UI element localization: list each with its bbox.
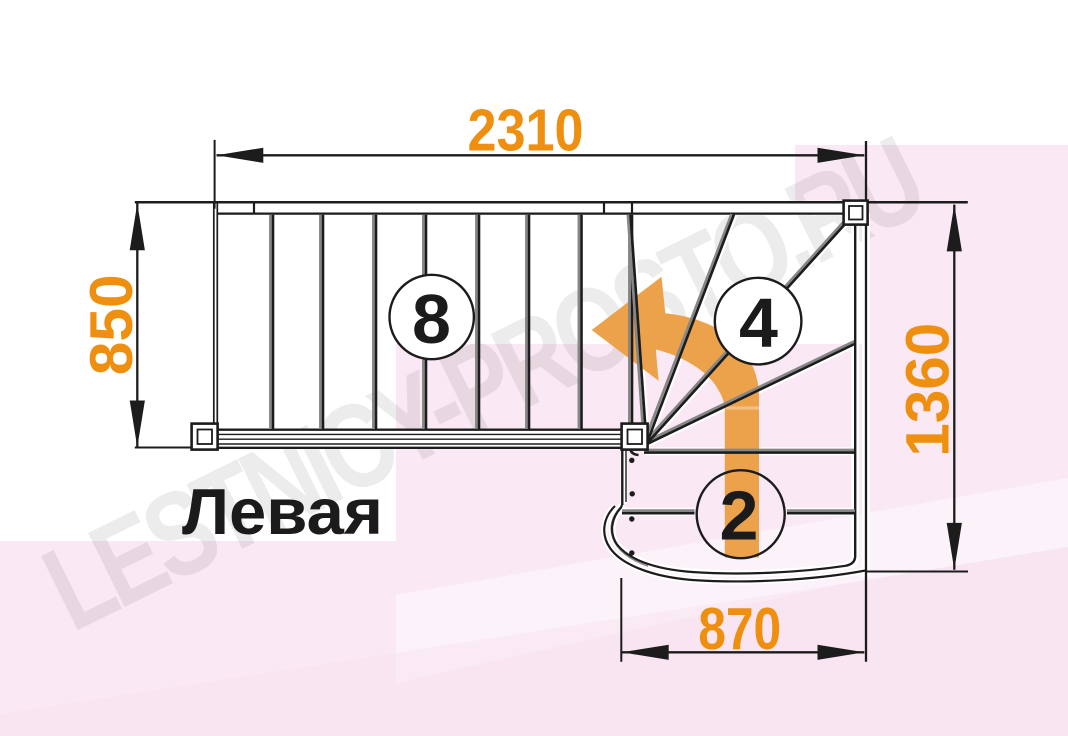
svg-text:8: 8 [412, 280, 451, 358]
svg-text:870: 870 [698, 595, 781, 662]
svg-text:1360: 1360 [893, 323, 961, 457]
svg-text:4: 4 [739, 284, 778, 362]
svg-text:2310: 2310 [468, 96, 584, 163]
svg-text:Левая: Левая [182, 475, 383, 548]
svg-text:850: 850 [78, 274, 145, 375]
svg-text:2: 2 [720, 477, 759, 555]
